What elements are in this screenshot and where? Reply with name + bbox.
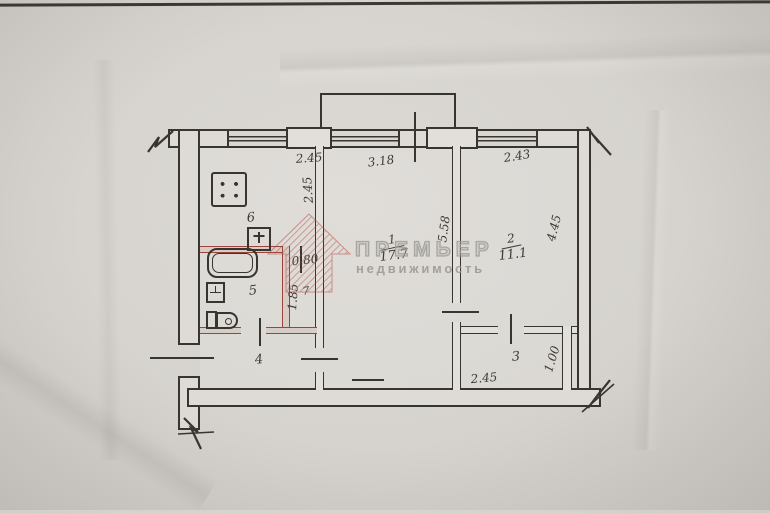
window-dimension-tick <box>414 112 416 162</box>
room1-room2-door-tick <box>442 311 479 313</box>
wall-break-icon <box>584 122 614 158</box>
room1-room2-divider-lower <box>452 322 461 390</box>
room2-window <box>476 129 538 148</box>
stove-icon <box>211 172 247 207</box>
bottom-wall <box>187 388 601 407</box>
room2-room3-door-tick <box>510 314 512 344</box>
floor-plan-scan: 2.45 3.18 2.43 2.45 5.58 4.45 0.80 1.85 … <box>0 0 770 510</box>
window-pier-left <box>286 127 332 149</box>
balcony-outline <box>320 93 456 131</box>
room2-number: 2 <box>506 232 515 245</box>
kitchen-hall-divider-lower <box>315 372 324 390</box>
left-wall-upper <box>178 129 200 345</box>
paper-crease <box>632 110 672 451</box>
room6-label: 6 <box>246 211 255 225</box>
hall-lower-door-tick <box>352 379 384 381</box>
watermark-brand-text: ПРЕМЬЕР <box>355 238 494 262</box>
room2-room3-wall-left <box>461 326 498 334</box>
right-wall <box>577 129 591 390</box>
room4-label: 4 <box>254 353 264 367</box>
room2-label-group: 2 11.1 <box>496 231 528 264</box>
entrance-door-tick <box>150 357 214 359</box>
bathroom-door-tick <box>259 318 261 346</box>
wall-break-icon <box>146 128 176 160</box>
watermark-tagline-text: недвижимость <box>356 261 485 276</box>
paper-crease <box>279 31 770 88</box>
room3-right-wall <box>562 326 572 390</box>
kitchen-window <box>227 129 288 148</box>
bathtub-icon <box>207 248 258 278</box>
dim-room1-width: 3.18 <box>367 153 395 168</box>
room5-label: 5 <box>248 284 258 298</box>
room1-window <box>330 129 400 148</box>
dim-kitchen-width: 2.45 <box>295 151 322 165</box>
scan-edge-line <box>0 0 770 6</box>
hall-room1-door-tick <box>301 358 338 360</box>
watermark-house-logo <box>266 212 352 296</box>
wall-break-icon <box>178 416 216 452</box>
dim-kitchen-depth: 2.45 <box>301 176 315 203</box>
washbasin-icon <box>206 282 225 303</box>
wall-break-icon <box>580 376 618 416</box>
bathroom-bottom-wall-right <box>266 327 317 334</box>
room1-room2-divider-upper <box>452 146 461 303</box>
top-wall-mid-segment <box>398 129 428 148</box>
toilet-bowl-icon <box>216 312 238 329</box>
room3-label: 3 <box>511 350 520 364</box>
dim-room3-width: 2.45 <box>470 371 498 385</box>
paper-crease <box>93 60 122 460</box>
